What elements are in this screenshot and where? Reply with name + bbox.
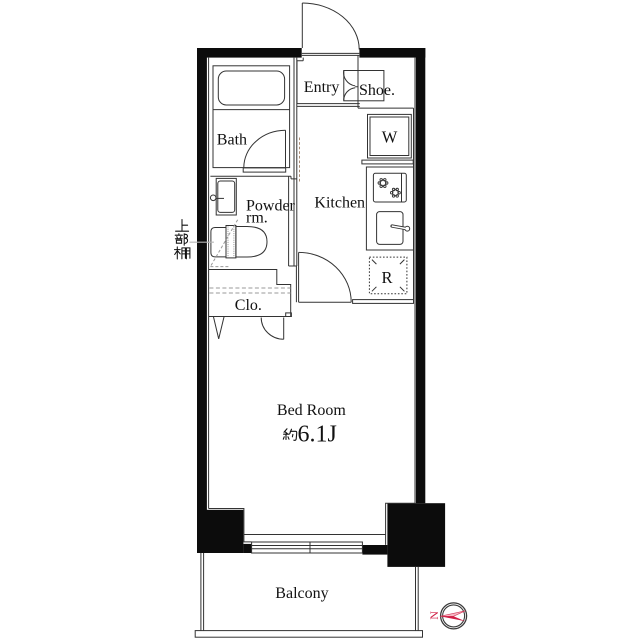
svg-text:W: W: [382, 127, 398, 146]
svg-text:Bath: Bath: [217, 132, 247, 149]
svg-text:Entry: Entry: [304, 79, 340, 96]
svg-text:Balcony: Balcony: [275, 585, 328, 602]
svg-text:Clo.: Clo.: [235, 297, 262, 314]
svg-text:R: R: [382, 268, 393, 287]
svg-text:rm.: rm.: [246, 210, 268, 227]
svg-text:Shoe.: Shoe.: [359, 82, 395, 99]
svg-text:Bed Room: Bed Room: [277, 402, 346, 419]
svg-text:Kitchen: Kitchen: [314, 195, 365, 212]
svg-text:6.1J: 6.1J: [298, 422, 337, 448]
svg-text:N: N: [427, 611, 441, 620]
